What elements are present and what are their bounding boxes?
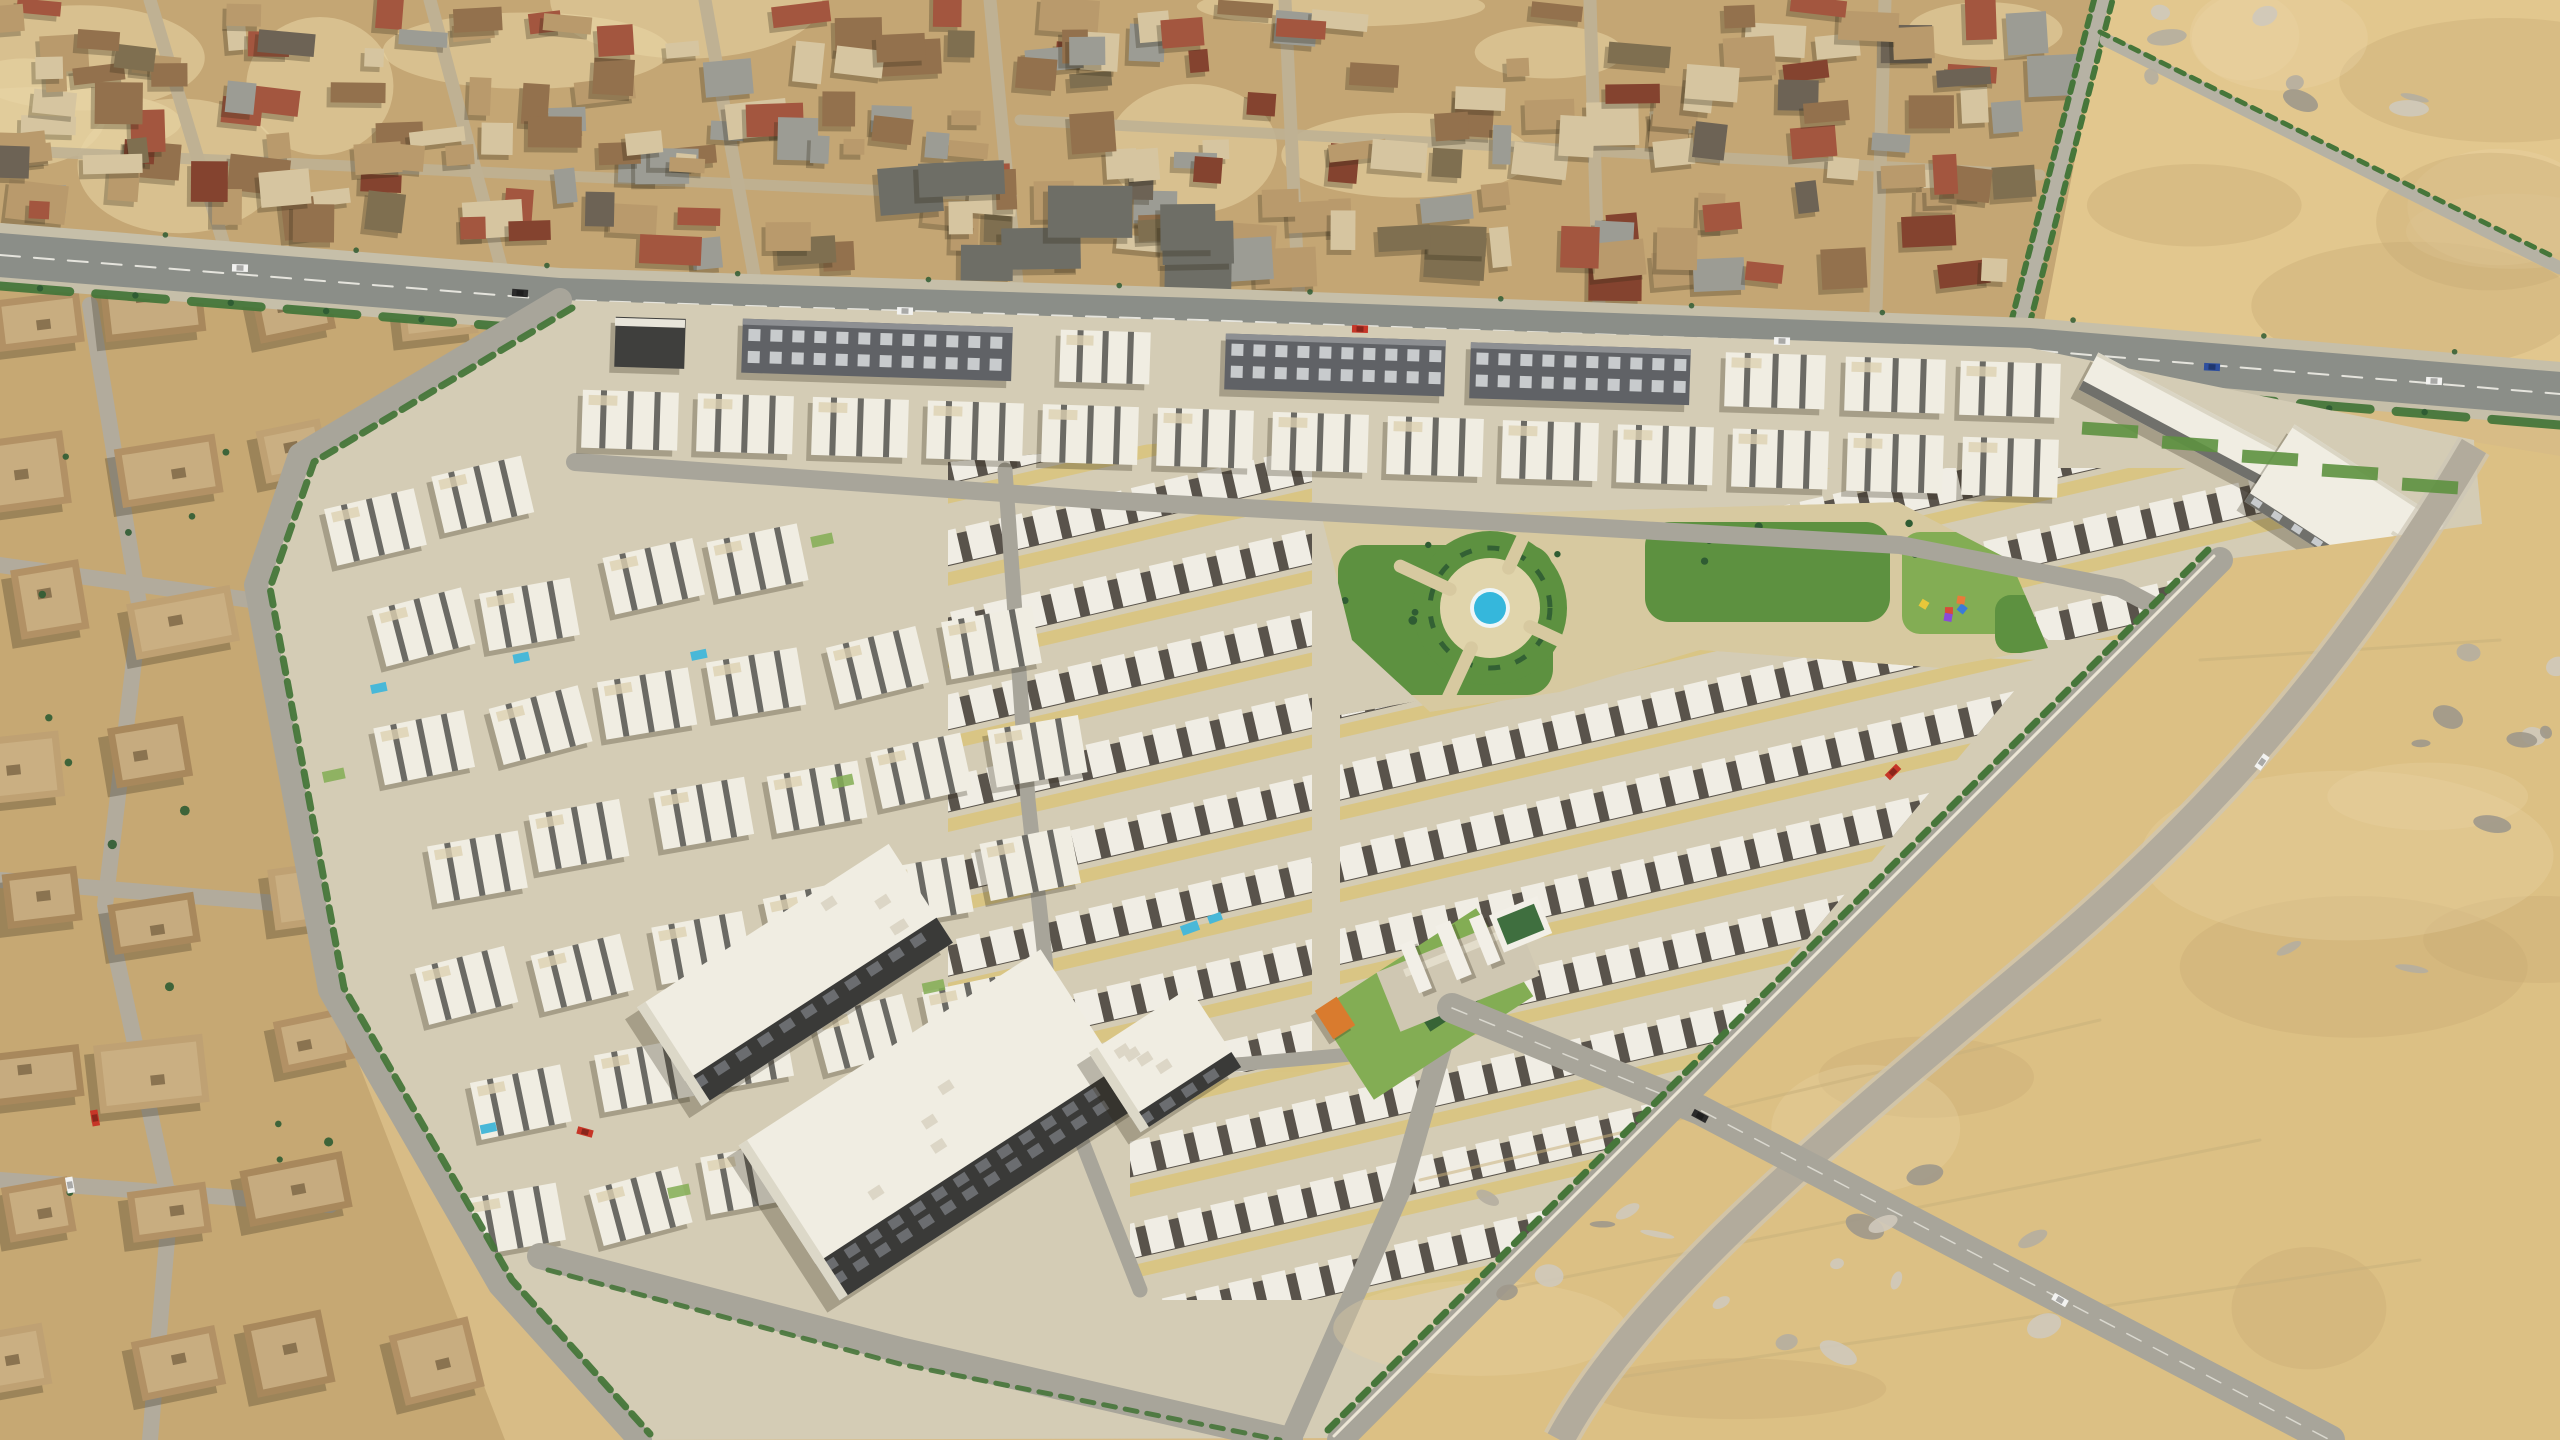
aerial-photo-desert-compound — [0, 0, 2560, 1440]
aerial-photo-canvas — [0, 0, 2560, 1440]
park-pool — [1474, 592, 1506, 624]
